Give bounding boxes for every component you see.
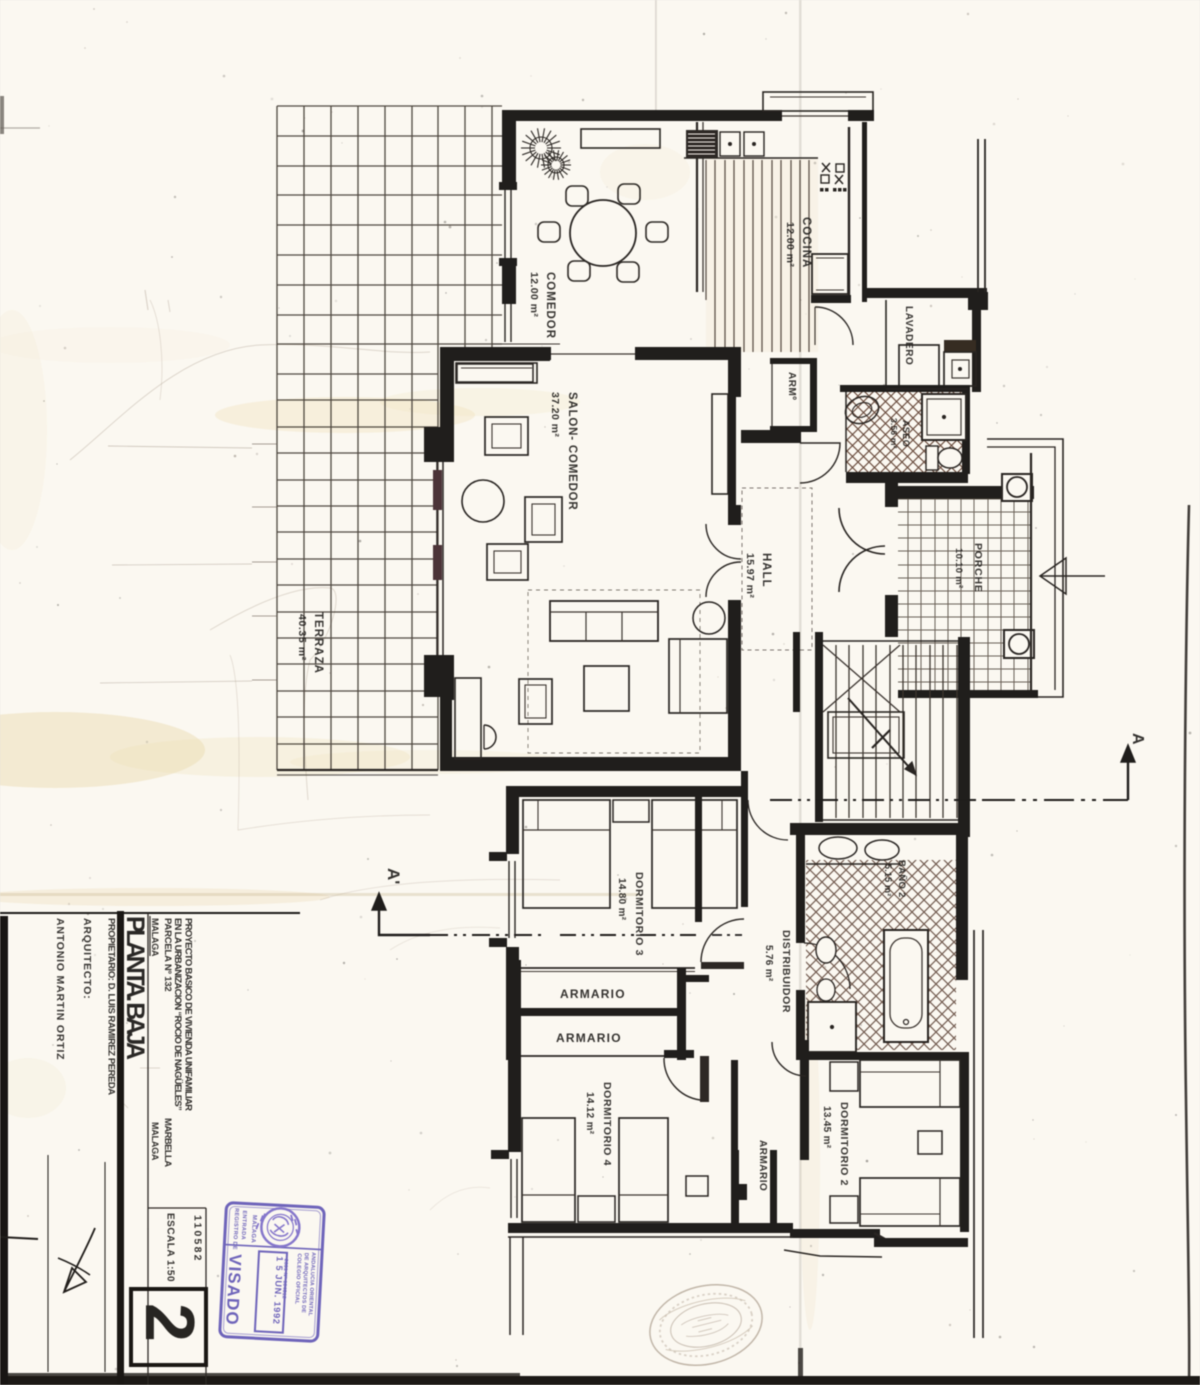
- svg-text:5.76 m²: 5.76 m²: [763, 945, 774, 982]
- svg-text:DORMITORIO 4: DORMITORIO 4: [601, 1082, 613, 1166]
- svg-text:A': A': [384, 868, 403, 884]
- svg-text:ESCALA 1:50: ESCALA 1:50: [165, 1213, 176, 1282]
- svg-text:3.56 m²: 3.56 m²: [889, 418, 899, 449]
- svg-text:PROPIETARIO: D. LUIS RAMIREZ: PROPIETARIO: D. LUIS RAMIREZ PEREDA: [106, 918, 117, 1095]
- svg-text:PARCELA Nº 132: PARCELA Nº 132: [162, 918, 173, 992]
- svg-text:37.20 m²: 37.20 m²: [549, 392, 561, 437]
- svg-text:ASEO: ASEO: [901, 420, 911, 447]
- svg-text:10.10 m²: 10.10 m²: [953, 548, 964, 588]
- svg-text:DISTRIBUIDOR: DISTRIBUIDOR: [780, 930, 792, 1013]
- svg-text:PLANTA. BAJA: PLANTA. BAJA: [121, 916, 149, 1060]
- svg-text:2: 2: [131, 1303, 209, 1342]
- svg-text:15.97 m²: 15.97 m²: [744, 553, 756, 598]
- svg-text:MALAGA: MALAGA: [150, 918, 160, 957]
- svg-text:PROYECTO BASICO DE VIVIENDA: PROYECTO BASICO DE VIVIENDA UNIFAMILIAR: [183, 918, 194, 1111]
- svg-text:5.15 m²: 5.15 m²: [883, 864, 893, 896]
- svg-text:EN LA URBANIZACION “ROCIO D: EN LA URBANIZACION “ROCIO DE NAGÜELES”: [172, 918, 183, 1111]
- svg-text:ARQUITECTO:: ARQUITECTO:: [81, 918, 93, 1000]
- svg-text:A: A: [1129, 733, 1146, 745]
- svg-text:ANTONIO MARTIN ORTIZ: ANTONIO MARTIN ORTIZ: [54, 918, 66, 1060]
- svg-text:ARMº: ARMº: [786, 372, 797, 400]
- svg-text:MARBELLA: MARBELLA: [162, 1118, 173, 1167]
- svg-text:HALL: HALL: [760, 553, 772, 588]
- svg-text:COCINA: COCINA: [800, 217, 812, 268]
- svg-text:13.45 m²: 13.45 m²: [821, 1106, 832, 1149]
- svg-text:COMEDOR: COMEDOR: [544, 272, 556, 339]
- svg-text:TERRAZA: TERRAZA: [312, 612, 324, 674]
- svg-text:ARMARIO: ARMARIO: [556, 1031, 622, 1045]
- svg-text:ARMARIO: ARMARIO: [757, 1140, 768, 1191]
- svg-text:110582: 110582: [192, 1215, 204, 1263]
- svg-text:12.00 m²: 12.00 m²: [784, 222, 796, 267]
- svg-text:14.12 m²: 14.12 m²: [584, 1092, 595, 1135]
- svg-text:BAÑO 2: BAÑO 2: [896, 860, 907, 898]
- svg-text:PORCHE: PORCHE: [972, 543, 984, 593]
- svg-text:14.80 m²: 14.80 m²: [616, 878, 627, 921]
- svg-text:LAVADERO: LAVADERO: [903, 306, 914, 365]
- svg-text:MALAGA: MALAGA: [150, 1122, 160, 1161]
- svg-text:40.35 m²: 40.35 m²: [296, 614, 308, 661]
- svg-text:DORMITORIO 2: DORMITORIO 2: [838, 1102, 850, 1186]
- svg-text:SALON- COMEDOR: SALON- COMEDOR: [566, 392, 578, 511]
- svg-text:ARMARIO: ARMARIO: [560, 987, 626, 1001]
- svg-text:12.00 m²: 12.00 m²: [528, 272, 540, 317]
- svg-text:VISADO: VISADO: [222, 1254, 245, 1327]
- svg-text:DORMITORIO 3: DORMITORIO 3: [633, 872, 645, 956]
